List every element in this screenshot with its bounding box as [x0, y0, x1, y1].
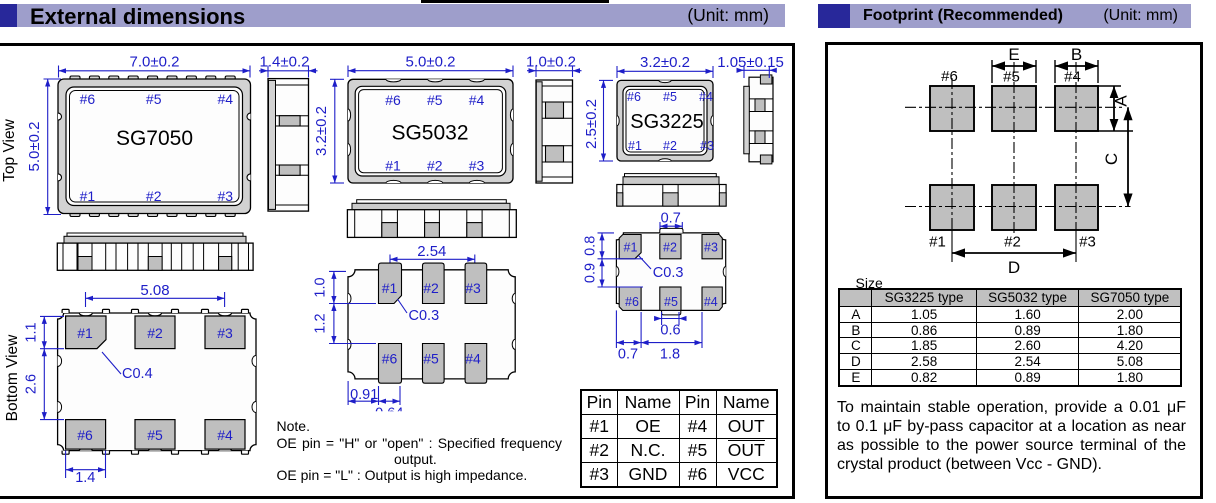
svg-text:0.9: 0.9	[583, 263, 599, 283]
svg-text:1.0: 1.0	[313, 277, 329, 297]
svg-text:#4: #4	[704, 295, 718, 309]
svg-text:#5: #5	[423, 351, 439, 367]
svg-text:#3: #3	[217, 325, 233, 341]
svg-text:3.2±0.2: 3.2±0.2	[640, 54, 690, 71]
svg-text:#2: #2	[663, 139, 677, 153]
svg-text:7.0±0.2: 7.0±0.2	[130, 54, 180, 71]
svg-text:5.0±0.2: 5.0±0.2	[26, 122, 43, 172]
svg-text:1.0±0.2: 1.0±0.2	[526, 54, 576, 71]
svg-text:#3: #3	[469, 158, 485, 174]
svg-text:#1: #1	[385, 158, 401, 174]
svg-text:#5: #5	[427, 92, 443, 108]
svg-text:SG5032: SG5032	[391, 122, 468, 145]
svg-text:5.0±0.2: 5.0±0.2	[406, 54, 456, 71]
svg-text:#6: #6	[385, 92, 401, 108]
svg-text:Top View: Top View	[1, 118, 18, 181]
svg-text:2.6: 2.6	[24, 374, 40, 394]
svg-text:0.6: 0.6	[660, 323, 680, 339]
svg-text:E: E	[1008, 45, 1019, 64]
svg-text:#6: #6	[77, 427, 93, 443]
svg-text:#4: #4	[469, 92, 485, 108]
svg-text:3.2±0.2: 3.2±0.2	[313, 106, 330, 156]
svg-text:#6: #6	[941, 68, 958, 85]
svg-text:#3: #3	[465, 280, 481, 296]
svg-text:2.5±0.2: 2.5±0.2	[583, 99, 600, 149]
svg-text:5.08: 5.08	[140, 282, 169, 299]
svg-text:Bottom View: Bottom View	[4, 334, 21, 422]
svg-text:#6: #6	[625, 295, 639, 309]
svg-text:#5: #5	[664, 295, 678, 309]
svg-text:C0.3: C0.3	[653, 265, 684, 281]
svg-text:#2: #2	[146, 188, 162, 204]
svg-text:#6: #6	[627, 90, 641, 104]
svg-text:1.4: 1.4	[75, 470, 95, 486]
svg-text:#5: #5	[663, 90, 677, 104]
svg-text:#1: #1	[382, 280, 398, 296]
svg-text:#2: #2	[423, 280, 439, 296]
svg-text:#1: #1	[77, 325, 93, 341]
svg-text:1.4±0.2: 1.4±0.2	[260, 54, 310, 71]
svg-text:#2: #2	[1004, 234, 1021, 251]
svg-text:1.8: 1.8	[660, 347, 680, 363]
svg-text:#1: #1	[80, 188, 96, 204]
svg-text:C0.4: C0.4	[122, 366, 153, 382]
svg-text:#1: #1	[624, 241, 638, 255]
svg-text:SG7050: SG7050	[116, 127, 193, 150]
svg-text:0.7: 0.7	[618, 347, 638, 363]
svg-text:B: B	[1071, 45, 1082, 64]
svg-text:#1: #1	[628, 139, 642, 153]
svg-text:2.54: 2.54	[417, 243, 446, 260]
svg-text:D: D	[1008, 258, 1020, 277]
svg-text:#5: #5	[146, 91, 162, 107]
svg-text:SG3225: SG3225	[630, 111, 703, 133]
svg-text:A: A	[1112, 95, 1131, 107]
svg-text:#2: #2	[427, 158, 443, 174]
svg-text:0.91: 0.91	[350, 387, 378, 403]
svg-text:#6: #6	[382, 351, 398, 367]
svg-text:#4: #4	[218, 91, 234, 107]
svg-text:C0.3: C0.3	[409, 308, 440, 324]
svg-text:1.2: 1.2	[313, 313, 329, 333]
svg-text:#3: #3	[1079, 234, 1096, 251]
svg-text:#4: #4	[465, 351, 481, 367]
svg-text:#3: #3	[218, 188, 234, 204]
svg-text:0.7: 0.7	[661, 211, 681, 227]
svg-text:0.8: 0.8	[583, 236, 599, 256]
svg-text:#1: #1	[929, 234, 946, 251]
svg-text:#3: #3	[700, 139, 714, 153]
svg-text:#4: #4	[699, 90, 713, 104]
svg-text:#2: #2	[147, 325, 163, 341]
svg-text:1.05±0.15: 1.05±0.15	[717, 54, 784, 71]
svg-text:#4: #4	[1064, 69, 1081, 86]
svg-text:C: C	[1102, 153, 1121, 165]
svg-text:#5: #5	[147, 427, 163, 443]
svg-text:1.1: 1.1	[24, 322, 40, 342]
svg-text:#3: #3	[704, 241, 718, 255]
svg-text:#6: #6	[80, 91, 96, 107]
svg-text:#4: #4	[217, 427, 233, 443]
svg-text:#2: #2	[663, 241, 677, 255]
svg-text:#5: #5	[1003, 69, 1020, 86]
